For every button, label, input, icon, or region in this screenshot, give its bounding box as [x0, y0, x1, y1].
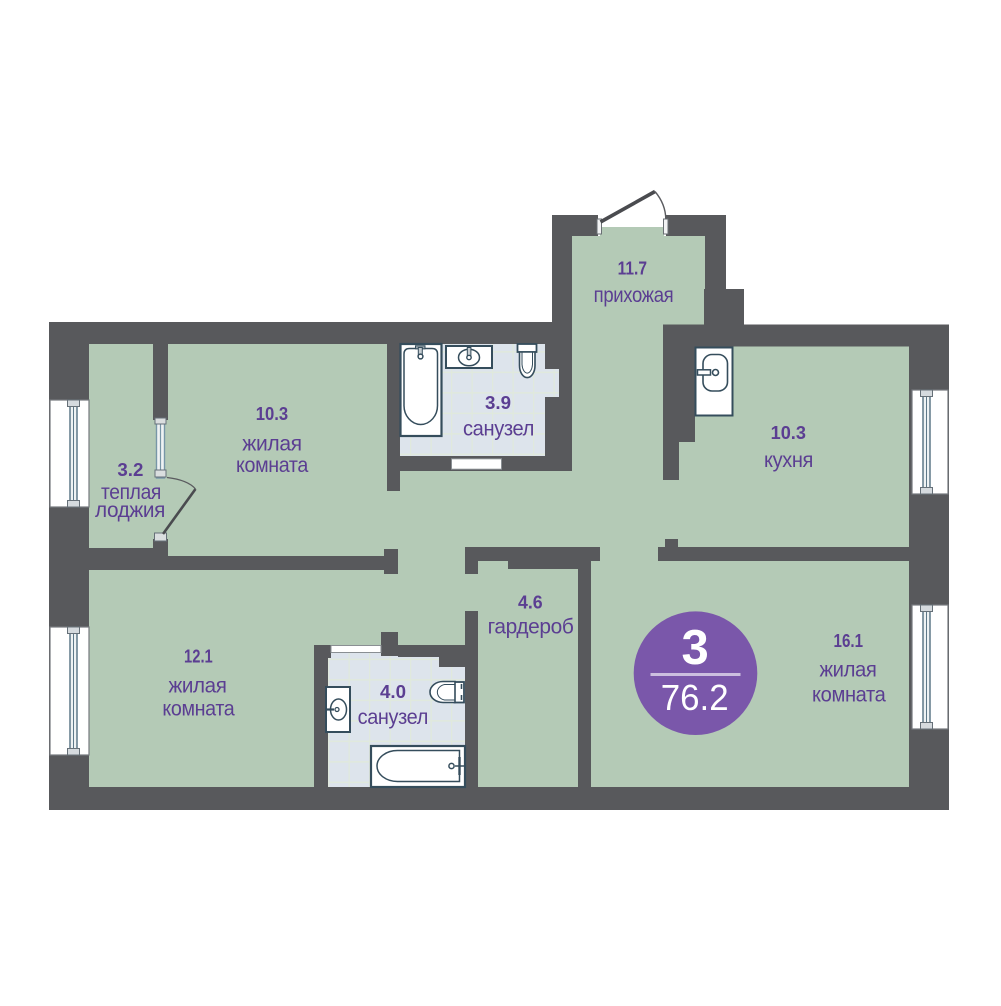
svg-text:4.6: 4.6: [518, 592, 543, 613]
svg-text:11.7: 11.7: [618, 258, 647, 279]
svg-text:жилая: жилая: [820, 658, 877, 682]
svg-text:гардероб: гардероб: [488, 615, 574, 639]
svg-text:3.9: 3.9: [485, 392, 511, 413]
svg-text:комната: комната: [236, 453, 308, 477]
svg-text:санузел: санузел: [463, 417, 534, 441]
svg-text:комната: комната: [812, 683, 886, 707]
svg-text:кухня: кухня: [764, 448, 813, 472]
svg-text:комната: комната: [162, 697, 234, 721]
svg-text:жилая: жилая: [169, 674, 227, 698]
svg-text:12.1: 12.1: [184, 646, 213, 667]
svg-text:лоджия: лоджия: [95, 498, 165, 522]
svg-text:3.2: 3.2: [117, 459, 143, 480]
svg-text:прихожая: прихожая: [594, 283, 674, 307]
svg-text:санузел: санузел: [358, 705, 428, 729]
svg-text:10.3: 10.3: [256, 403, 288, 424]
svg-text:3: 3: [681, 621, 708, 675]
svg-text:жилая: жилая: [242, 432, 301, 456]
svg-text:16.1: 16.1: [834, 630, 864, 651]
svg-text:4.0: 4.0: [380, 681, 406, 702]
svg-text:10.3: 10.3: [771, 422, 806, 443]
svg-text:76.2: 76.2: [661, 677, 729, 718]
